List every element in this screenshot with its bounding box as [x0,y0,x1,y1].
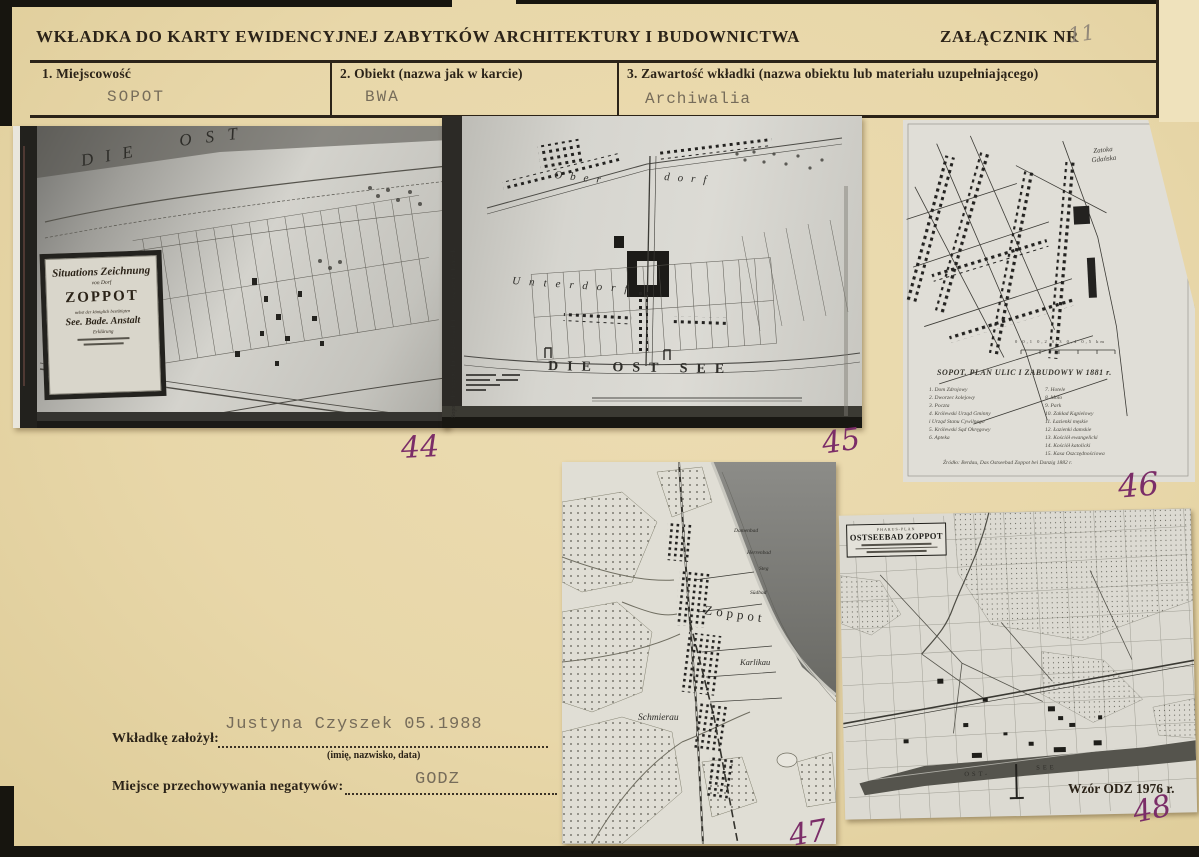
photo-map-situationszeichnung-zoppot: DIE OST Situations Zeichnung von Dorf ZO… [13,126,449,428]
photo-number-48: 48 [1130,788,1175,830]
cartouche-erklaerung: Erklärung [93,330,114,336]
field-miejscowosc-value: SOPOT [107,88,165,106]
founder-hint: (imię, nazwisko, data) [327,750,420,761]
photo-number-44: 44 [400,429,440,466]
map-45-label-unterdorf: Unterdorf [512,275,637,296]
map-47-karlikau-label: Karlikau [739,657,770,667]
scan-edge-bottom [0,846,1199,857]
card-right-border [1156,0,1159,118]
founder-label: Wkładkę założył: [112,731,219,747]
title-box-text-bar-3 [867,550,927,553]
title-box-text-bar-2 [856,546,938,549]
archive-card-scan: WKŁADKA DO KARTY EWIDENCYJNEJ ZABYTKÓW A… [0,0,1199,857]
photo-map-plan-ulic-1881: Zatoka Gdańska 0 0,1 0,2 0,3 0,4 0,5 km … [903,120,1195,482]
map-47-damenbad-label: Damenbad [733,528,758,534]
map-48-sea-word-ost: OST- [964,771,990,779]
scan-edge-top-right [516,0,1157,4]
field-zawartosc-value: Archiwalia [645,90,751,108]
map-45-left-caption: Sopot, Plan Sopotu z lat 1842-44, skala … [451,247,457,418]
cartouche-subtitle: von Dorf [92,280,112,287]
founder-value: Justyna Czyszek 05.1988 [225,715,483,734]
photo-map-plan-sopotu-1842-44: Sopot, Plan Sopotu z lat 1842-44, skala … [442,116,862,428]
storage-dotted-line [345,793,557,795]
map-46-source: Źródło: Berdau, Das Ostseebad Zoppot bei… [943,460,1072,466]
attachment-label: ZAŁĄCZNIK NR [940,27,1079,47]
map-48-sea-word-see: SEE [1036,764,1057,771]
scan-edge-left-top [0,0,12,126]
map-47-steg-label: Steg [759,566,769,572]
map-46-legend-left: 1. Dom Zdrojowy 2. Dworzec kolejowy 3. P… [929,386,991,442]
field-divider-2 [617,60,619,115]
cartouche-title-line: Situations Zeichnung [52,264,150,279]
photo-number-46: 46 [1116,464,1160,505]
photo-number-45: 45 [820,422,863,462]
field-obiekt-label: 2. Obiekt (nazwa jak w karcie) [340,66,523,82]
field-divider-1 [330,60,332,115]
field-miejscowosc-label: 1. Miejscowość [42,66,131,82]
photo-map-topographic-zoppot: Zoppot Schmierau Karlikau Damenbad Herre… [562,462,836,844]
founder-dotted-line [218,746,548,748]
card-right-margin [1159,0,1199,122]
photo-number-47: 47 [786,813,830,854]
cartouche-bath-line: See. Bade. Anstalt [65,315,140,329]
map-48-title-box: PHARUS-PLAN OSTSEEBAD ZOPPOT [846,522,947,557]
map-45-label-ober: Ober [554,169,610,187]
field-obiekt-value: BWA [365,88,400,106]
card-title: WKŁADKA DO KARTY EWIDENCYJNEJ ZABYTKÓW A… [36,27,800,47]
cartouche-small-line: nebst der königlich bestätigten [75,308,131,315]
attachment-number-handwritten: 11 [1066,20,1096,47]
map-47-suedbad-label: Südbad [750,590,767,596]
cartouche-town-name: ZOPPOT [65,288,139,308]
map-45-label-dorf: dorf [664,171,715,186]
map-45-drawing: Sopot, Plan Sopotu z lat 1842-44, skala … [442,116,862,428]
map-47-drawing: Zoppot Schmierau Karlikau Damenbad Herre… [562,462,836,844]
storage-value: GODZ [415,770,460,789]
map-44-cartouche: Situations Zeichnung von Dorf ZOPPOT neb… [39,250,166,400]
map-47-town-label: Zoppot [704,602,767,625]
map-46-scale-labels: 0 0,1 0,2 0,3 0,4 0,5 km [1015,339,1106,344]
map-45-sea-label: DIE OST SEE [548,359,733,377]
map-48-plan-title: OSTSEEBAD ZOPPOT [850,531,943,543]
field-zawartosc-label: 3. Zawartość wkładki (nazwa obiektu lub … [627,66,1038,82]
storage-label: Miejsce przechowywania negatywów: [112,779,343,795]
header-rule [30,60,1156,63]
title-box-text-bar [861,543,931,546]
map-46-bay-label: Zatoka Gdańska [1090,145,1117,166]
map-47-herrenbad-label: Herrenbad [746,550,771,556]
map-47-schmierau-label: Schmierau [638,713,679,723]
cartouche-legend-bar-2 [84,342,124,345]
map-46-legend-right: 7. Hotele 8. Molo 9. Park 10. Zakład Kąp… [1045,386,1105,458]
scan-edge-top-left [0,0,452,7]
map-46-caption: SOPOT. PLAN ULIC I ZABUDOWY W 1881 r. [937,368,1112,377]
cartouche-legend-bar [77,337,129,341]
photo-map-pharus-plan-zoppot: OST- SEE PHARUS-PLAN OSTSEEBAD ZOPPOT [839,508,1197,819]
